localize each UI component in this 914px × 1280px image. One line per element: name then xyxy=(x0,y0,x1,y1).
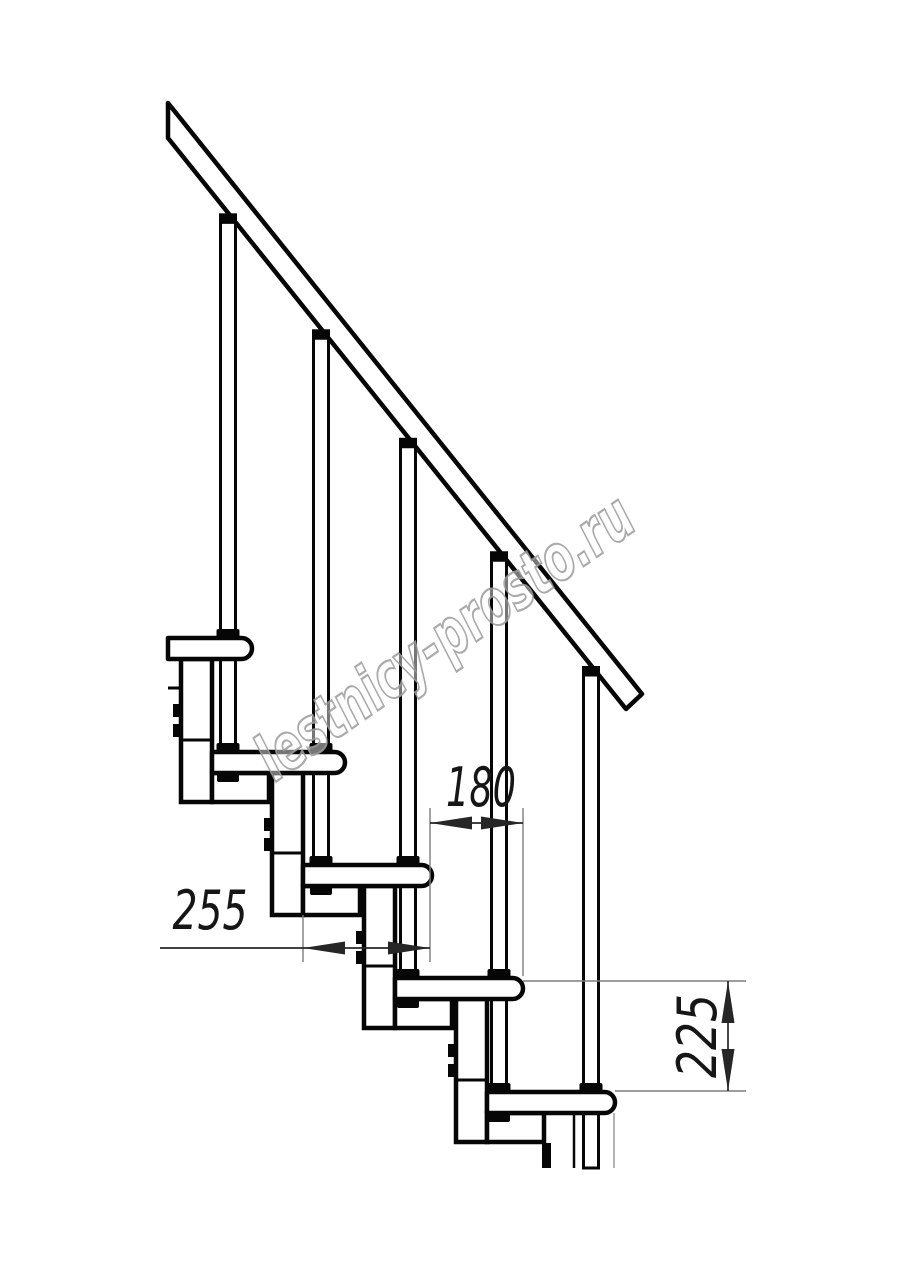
rod-top-cap xyxy=(219,215,237,224)
dim-label-step-offset: 180 xyxy=(446,756,516,819)
drawing-canvas: 180 255 225 lestnicy-prosto.ru xyxy=(0,0,914,1280)
baluster-rod-5 xyxy=(584,667,599,1092)
tread-4 xyxy=(395,978,523,999)
bolt-tab xyxy=(264,838,273,851)
bolt-tab xyxy=(448,1064,457,1077)
tread-3 xyxy=(303,865,432,886)
tread-5 xyxy=(487,1092,615,1113)
baluster-rod-lower-1 xyxy=(221,659,236,752)
support-module-4 xyxy=(456,999,487,1142)
next-module-edge xyxy=(542,1143,551,1168)
rod-nut xyxy=(217,773,239,782)
bolt-tab xyxy=(264,818,273,831)
support-module-1 xyxy=(181,659,212,802)
baluster-rod-lower-4 xyxy=(492,999,507,1092)
rod-top-cap xyxy=(399,439,417,448)
staircase-technical-drawing: 180 255 225 lestnicy-prosto.ru xyxy=(0,0,914,1280)
rod-lower-foot xyxy=(488,1083,511,1092)
rod-lower-foot xyxy=(310,856,333,865)
rod-nut xyxy=(397,999,419,1008)
rod-top-cap xyxy=(582,667,600,676)
dim-arrow xyxy=(303,942,345,955)
bolt-tab xyxy=(356,931,365,944)
tread-1 xyxy=(168,638,252,659)
bolt-tab xyxy=(173,704,182,717)
support-module-2 xyxy=(272,773,303,915)
baluster-rod-lower-5 xyxy=(584,1113,599,1168)
rod-lower-foot xyxy=(217,743,240,752)
bolt-tab xyxy=(448,1044,457,1057)
bolt-tab xyxy=(173,724,182,737)
rod-top-cap xyxy=(312,331,330,340)
rod-nut xyxy=(310,886,332,895)
support-module-3 xyxy=(364,886,395,1028)
bolt-tab xyxy=(356,951,365,964)
rod-lower-foot xyxy=(397,969,420,978)
rod-nut xyxy=(488,1113,510,1122)
baluster-rod-lower-2 xyxy=(314,773,329,865)
rod-foot xyxy=(217,629,240,638)
rod-foot xyxy=(397,856,420,865)
rod-foot xyxy=(488,969,511,978)
dim-label-riser-height: 225 xyxy=(666,994,729,1078)
baluster-rod-lower-3 xyxy=(401,886,416,978)
rod-foot xyxy=(580,1083,603,1092)
dim-label-tread-depth: 255 xyxy=(173,879,248,942)
baluster-rod-1 xyxy=(221,215,236,638)
